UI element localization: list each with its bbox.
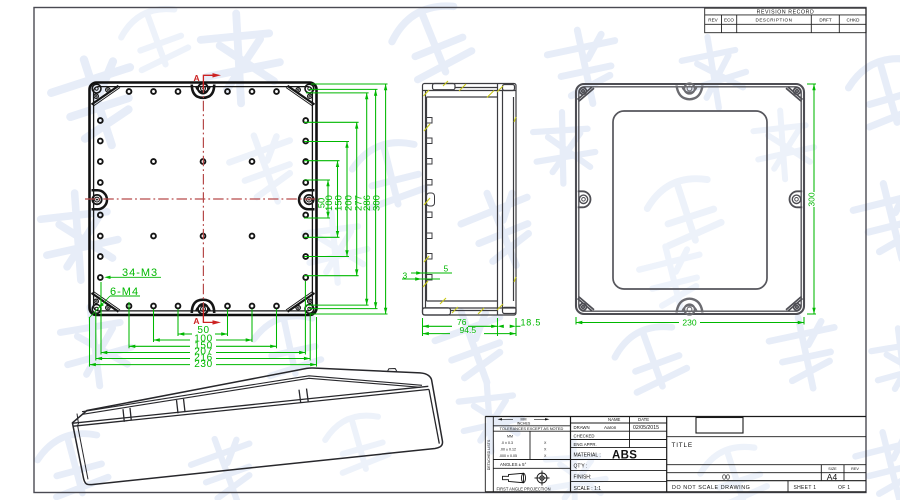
svg-text:DRAWN: DRAWN (574, 425, 590, 430)
svg-text:ANGLES ± 5°: ANGLES ± 5° (500, 462, 527, 467)
svg-text:SCALE : 1:1: SCALE : 1:1 (574, 486, 602, 492)
svg-text:MATERIAL :: MATERIAL : (574, 453, 601, 459)
svg-text:230: 230 (194, 359, 213, 370)
svg-text:MM: MM (507, 435, 513, 439)
svg-text:FINISH:: FINISH: (574, 475, 592, 481)
svg-text:X: X (544, 448, 547, 452)
svg-text:FIRST ANGLE PROJECTION: FIRST ANGLE PROJECTION (497, 486, 551, 491)
svg-text:.000 ± 0.05: .000 ± 0.05 (499, 454, 517, 458)
svg-text:INCHES: INCHES (517, 422, 531, 426)
svg-text:Aaron: Aaron (604, 425, 617, 430)
svg-text:3: 3 (403, 271, 408, 281)
svg-text:A: A (194, 73, 200, 83)
svg-text:230: 230 (682, 318, 696, 328)
svg-text:QT'Y :: QT'Y : (574, 464, 588, 470)
svg-text:02/05/2015: 02/05/2015 (633, 425, 659, 431)
svg-text:ECO: ECO (724, 18, 734, 23)
svg-text:00: 00 (722, 475, 730, 482)
svg-text:DO NOT SCALE DRAWING: DO NOT SCALE DRAWING (672, 485, 750, 491)
svg-text:ABS: ABS (612, 450, 637, 462)
svg-text:SHEET 1: SHEET 1 (794, 485, 817, 491)
svg-text:REVISION RECORD: REVISION RECORD (757, 10, 815, 16)
svg-text:CHECKED: CHECKED (574, 434, 595, 439)
svg-text:TITLE: TITLE (672, 442, 693, 449)
svg-text:NAME: NAME (608, 417, 621, 422)
svg-text:.0 ± 0.3: .0 ± 0.3 (501, 441, 513, 445)
svg-text:ENG APPR.: ENG APPR. (574, 442, 597, 447)
svg-text:SIZE: SIZE (828, 467, 837, 471)
svg-text:DESCRIPTION: DESCRIPTION (756, 18, 793, 23)
svg-text:.00 ± 0.12: .00 ± 0.12 (500, 448, 516, 452)
svg-text:REV: REV (708, 18, 718, 23)
svg-text:5: 5 (444, 264, 449, 274)
svg-text:DRFT: DRFT (819, 18, 831, 23)
svg-text:CHKD: CHKD (846, 18, 860, 23)
svg-text:DATE: DATE (638, 417, 649, 422)
svg-text:DETACHED LISTS: DETACHED LISTS (487, 439, 491, 470)
svg-text:TOLERANCES EXCEPT AS NOTED: TOLERANCES EXCEPT AS NOTED (500, 426, 564, 431)
svg-text:A4: A4 (827, 472, 838, 482)
svg-text:18.5: 18.5 (521, 318, 542, 328)
svg-text:94.5: 94.5 (460, 325, 477, 335)
svg-text:REV: REV (851, 467, 859, 471)
svg-text:300: 300 (807, 192, 817, 206)
svg-text:X: X (544, 441, 547, 445)
svg-text:OF 1: OF 1 (838, 485, 850, 491)
svg-text:300: 300 (371, 195, 382, 211)
